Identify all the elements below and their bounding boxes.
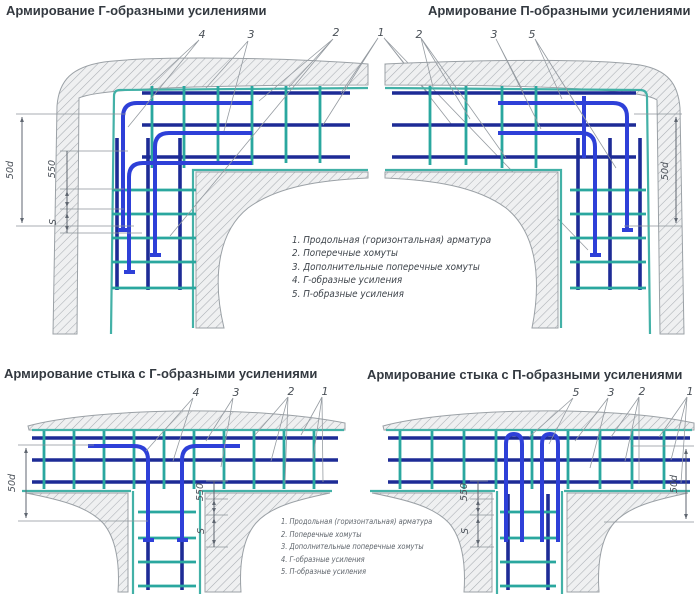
callout-1: 1 xyxy=(687,385,694,398)
drawing-sheet: Армирование Г-образными усилениями Армир… xyxy=(0,0,700,599)
callout-3: 3 xyxy=(248,28,255,41)
top-wall-concrete xyxy=(28,411,345,430)
top-wall-concrete xyxy=(383,411,694,430)
callout-4: 4 xyxy=(193,386,200,399)
callout-2: 2 xyxy=(333,26,340,39)
left-haunch-concrete xyxy=(26,493,128,592)
callout-4: 4 xyxy=(199,28,206,41)
legend-item: 4. Г-образные усиления xyxy=(281,554,432,567)
dim-zone-label: 550 xyxy=(195,483,206,501)
dim-spacing-label: S xyxy=(460,528,471,534)
dim-spacing-label: S xyxy=(48,219,59,225)
legend-small: 1. Продольная (горизонтальная) арматура … xyxy=(281,516,432,579)
dim-anchorage-label: 50d xyxy=(660,161,671,180)
callout-2: 2 xyxy=(288,385,295,398)
legend-item: 5. П-образные усиления xyxy=(281,566,432,579)
legend: 1. Продольная (горизонтальная) арматура … xyxy=(292,234,491,301)
legend-item: 1. Продольная (горизонтальная) арматура xyxy=(292,234,491,247)
legend-item: 3. Дополнительные поперечные хомуты xyxy=(281,541,432,554)
callout-3: 3 xyxy=(491,28,498,41)
callout-5: 5 xyxy=(529,28,536,41)
callout-2: 2 xyxy=(416,28,423,41)
callouts-bottom-left: 4 3 2 1 xyxy=(146,385,329,483)
legend-item: 2. Поперечные хомуты xyxy=(281,529,432,542)
legend-item: 1. Продольная (горизонтальная) арматура xyxy=(281,516,432,529)
legend-item: 5. П-образные усиления xyxy=(292,288,491,301)
legend-item: 3. Дополнительные поперечные хомуты xyxy=(292,261,491,274)
dim-anchorage-label: 50d xyxy=(669,474,680,493)
legend-item: 2. Поперечные хомуты xyxy=(292,247,491,260)
callout-1: 1 xyxy=(322,385,329,398)
dim-zone-label: 550 xyxy=(47,160,58,178)
callout-2: 2 xyxy=(639,385,646,398)
dim-zone-label: 550 xyxy=(459,483,470,501)
dim-anchorage-label: 50d xyxy=(7,473,18,492)
callout-5: 5 xyxy=(573,386,580,399)
right-haunch-concrete xyxy=(567,493,688,592)
callout-3: 3 xyxy=(608,386,615,399)
callout-1: 1 xyxy=(378,26,385,39)
dim-spacing-label: S xyxy=(196,528,207,534)
dim-anchorage-label: 50d xyxy=(5,160,16,179)
callout-3: 3 xyxy=(233,386,240,399)
legend-item: 4. Г-образные усиления xyxy=(292,274,491,287)
